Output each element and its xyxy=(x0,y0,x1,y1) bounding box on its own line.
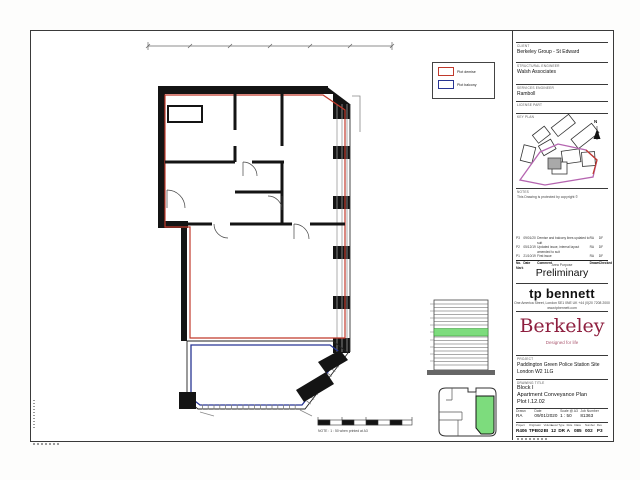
client-value: Berkeley Group - St Edward xyxy=(517,49,579,55)
rule xyxy=(516,283,608,284)
license-label: LICENSE PART xyxy=(517,103,542,107)
legend-balcony-label: Plot balcony xyxy=(457,83,477,87)
rule xyxy=(516,188,608,189)
project-location: London W2 1LG xyxy=(517,369,553,375)
highlighted-unit xyxy=(476,396,494,434)
unit-key-diagram xyxy=(439,388,496,436)
structural-engineer-label: STRUCTURAL ENGINEER xyxy=(517,64,560,68)
drawing-title-label: Drawing Title xyxy=(517,381,544,385)
legend-demise-label: Plot demise xyxy=(457,70,476,74)
project-name: Paddington Green Police Station Site xyxy=(517,362,611,368)
date-value: 09/01/2020 xyxy=(534,413,560,418)
plot-demise-line xyxy=(165,95,345,338)
berkeley-logo: Berkeley xyxy=(513,315,611,337)
firm-website: www.tpbennett.com xyxy=(513,306,611,310)
dimension-line xyxy=(146,42,394,50)
rule xyxy=(516,436,608,437)
key-plan-label: KEY PLAN xyxy=(517,115,534,119)
revision-row: P309/01/20 Demise and balcony lines upda… xyxy=(516,236,608,245)
services-engineer-label: SERVICES ENGINEER xyxy=(517,86,554,90)
demise-swatch-icon xyxy=(438,67,454,76)
drawing-title-line1: Block I xyxy=(517,385,534,391)
legend-item-balcony: Plot balcony xyxy=(438,80,494,89)
scale-bar xyxy=(318,417,412,425)
balcony xyxy=(179,341,348,416)
structural-engineer-value: Walsh Associates xyxy=(517,69,556,75)
drawn-value: RA xyxy=(516,413,534,418)
drawing-status: Preliminary xyxy=(513,267,611,279)
copyright-note: This Drawing is protected by copyright © xyxy=(517,195,578,199)
section-key-diagram xyxy=(427,300,495,375)
scale-value: 1 : 50 xyxy=(560,413,580,418)
footer-plot-stamp xyxy=(33,443,61,445)
project-label: Project xyxy=(517,357,533,361)
services-engineer-value: Ramboll xyxy=(517,91,535,97)
berkeley-tagline: Designed for life xyxy=(513,340,611,345)
document-number: R406 TPB02 BI 12 DR A 085 002 P3 xyxy=(516,428,608,433)
firm-address: One America Street, London SE1 0NE UK +4… xyxy=(513,301,611,305)
key-plan-drawing xyxy=(520,114,599,185)
job-number-value: 81363 xyxy=(580,413,608,418)
scale-note: NOTE : 1 : 50 when printed at A3 xyxy=(318,429,368,433)
interior-walls xyxy=(165,94,345,224)
firm-logo: tp bennett xyxy=(513,286,611,301)
rule xyxy=(516,311,608,312)
north-label: N xyxy=(594,119,597,124)
meta-table: Drawn Date Scale @ A3 Job Number RA 09/0… xyxy=(516,409,608,418)
drawing-sheet: N Plot demise Plot balcony NOTE : 1 : 50… xyxy=(0,0,640,480)
legend-item-demise: Plot demise xyxy=(438,67,494,76)
plan-walls xyxy=(158,86,350,353)
rule xyxy=(516,42,608,43)
client-label: CLIENT xyxy=(517,44,530,48)
revision-row: P121/10/19 First issueRA DF xyxy=(516,254,608,259)
edge-plot-stamp xyxy=(33,398,35,428)
plan-legend: Plot demise Plot balcony xyxy=(432,62,495,99)
highlighted-level xyxy=(434,329,488,337)
balcony-swatch-icon xyxy=(438,80,454,89)
revision-row: P205/12/19 Updated issue, internal layou… xyxy=(516,245,608,254)
drawing-title-line2: Apartment Conveyance Plan xyxy=(517,392,587,398)
titleblock-footer-microtext xyxy=(517,438,547,440)
notes-label: Notes xyxy=(517,190,529,194)
document-number-headers: Project Originator Volume Level Type Rol… xyxy=(516,423,608,427)
drawing-title-line3: Plot I.12.02 xyxy=(517,399,545,405)
